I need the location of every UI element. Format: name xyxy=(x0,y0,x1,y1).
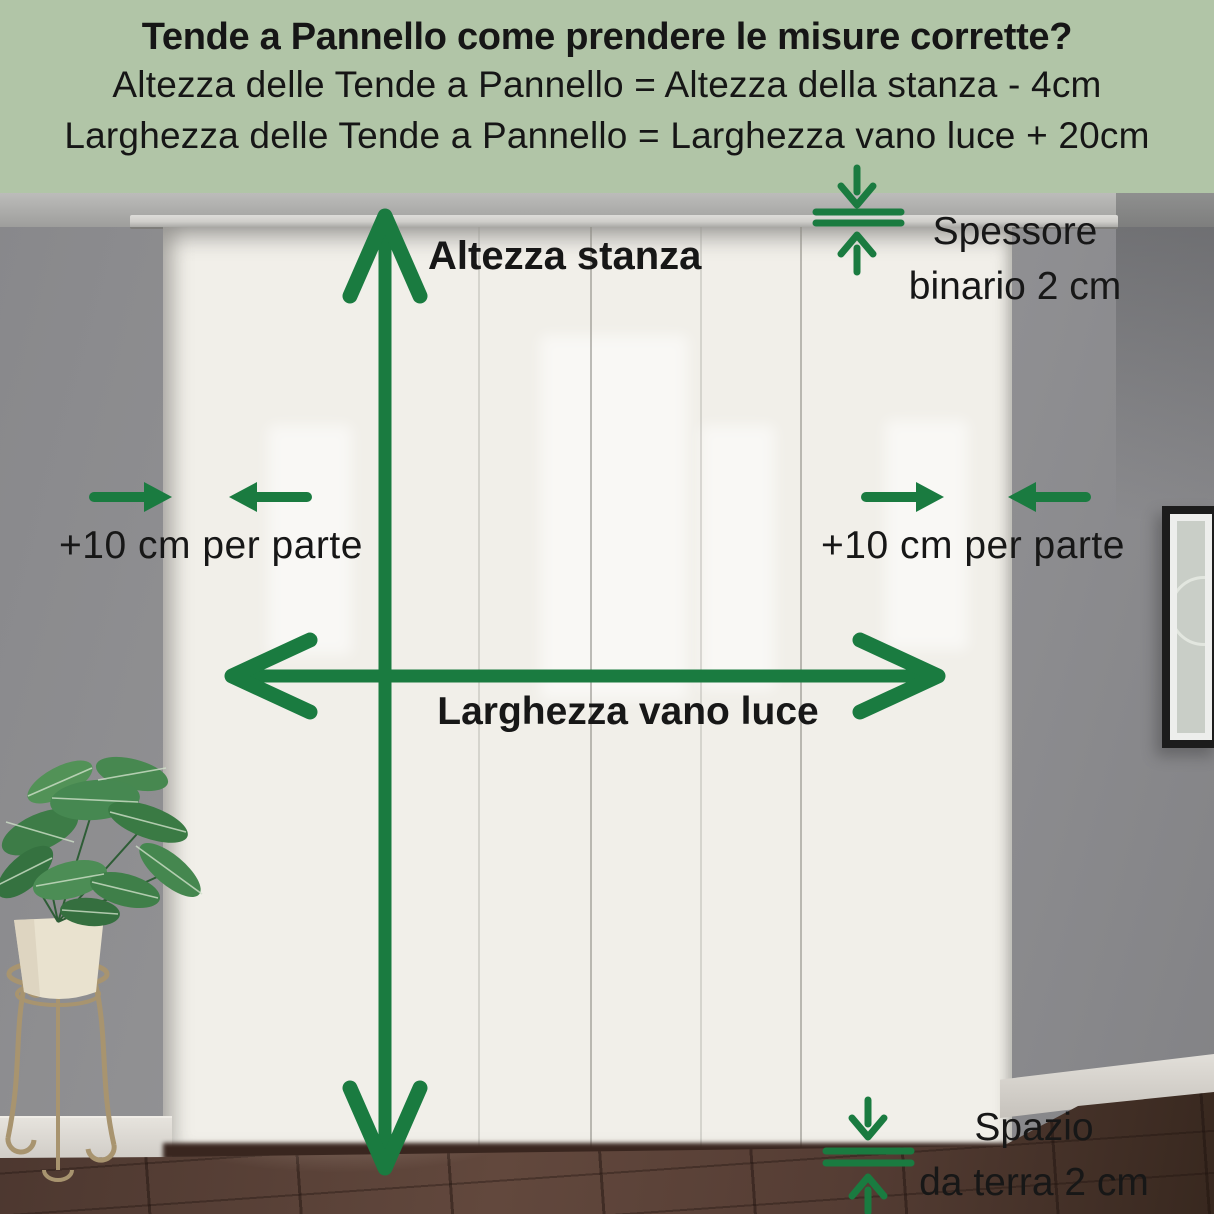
header-banner: Tende a Pannello come prendere le misure… xyxy=(0,0,1214,193)
plant-pot-icon xyxy=(14,916,104,999)
track-thickness-line1: Spessore xyxy=(880,204,1150,259)
track-thickness-line2: binario 2 cm xyxy=(880,259,1150,314)
curtain-reflection xyxy=(700,425,775,690)
floor-gap-label: Spazio da terra 2 cm xyxy=(908,1100,1160,1210)
page-title: Tende a Pannello come prendere le misure… xyxy=(0,16,1214,59)
side-margin-right-label: +10 cm per parte xyxy=(798,524,1148,568)
track-thickness-label: Spessore binario 2 cm xyxy=(880,204,1150,314)
panel-seam xyxy=(590,227,592,1150)
artwork-circle-motif xyxy=(1177,576,1205,646)
panel-curtains xyxy=(163,227,1012,1150)
panel-seam xyxy=(478,227,480,1150)
height-formula-text: Altezza delle Tende a Pannello = Altezza… xyxy=(0,59,1214,110)
measurement-infographic: { "header": { "title": "Tende a Pannello… xyxy=(0,0,1214,1214)
potted-plant xyxy=(0,740,230,1214)
frame-artwork xyxy=(1177,521,1205,733)
room-height-label: Altezza stanza xyxy=(428,234,701,279)
floor-gap-line2: da terra 2 cm xyxy=(908,1155,1160,1210)
floor-gap-line1: Spazio xyxy=(908,1100,1160,1155)
curtain-reflection xyxy=(540,335,688,700)
side-margin-left-label: +10 cm per parte xyxy=(30,524,392,568)
panel-seam xyxy=(800,227,802,1150)
plant-leaves-icon xyxy=(0,750,209,928)
picture-frame xyxy=(1162,506,1214,748)
width-formula-text: Larghezza delle Tende a Pannello = Largh… xyxy=(0,110,1214,161)
panel-seam xyxy=(700,227,702,1150)
opening-width-label: Larghezza vano luce xyxy=(418,690,838,734)
